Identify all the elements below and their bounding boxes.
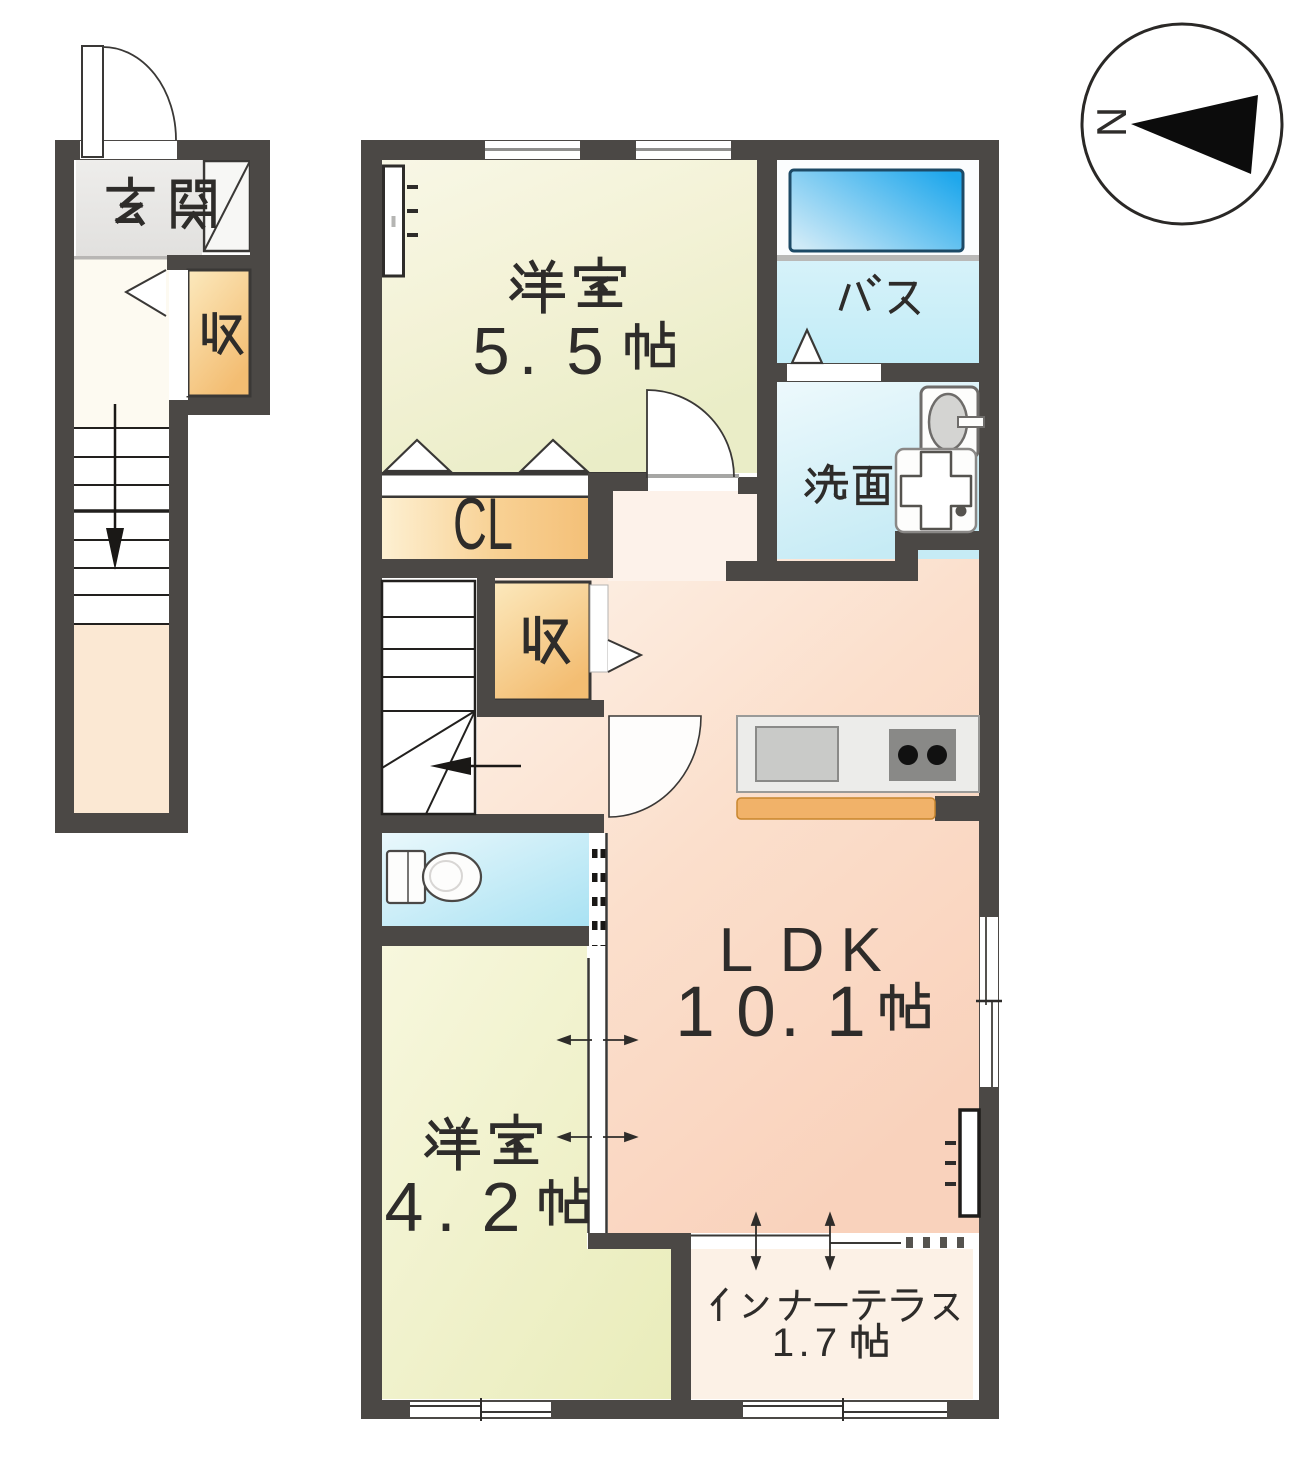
svg-text:5: 5: [472, 314, 509, 389]
svg-text:.: .: [519, 314, 538, 389]
svg-text:2: 2: [482, 1168, 521, 1246]
svg-text:5: 5: [566, 314, 603, 389]
svg-text:4: 4: [385, 1168, 424, 1246]
svg-text:CL: CL: [453, 484, 513, 565]
svg-text:.: .: [436, 1168, 455, 1246]
svg-text:.: .: [798, 1321, 809, 1365]
svg-text:7: 7: [815, 1321, 837, 1365]
svg-text:1: 1: [772, 1321, 794, 1365]
svg-text:N: N: [1088, 107, 1135, 137]
svg-text:.: .: [780, 973, 800, 1052]
svg-text:1: 1: [675, 973, 715, 1052]
svg-text:0: 0: [736, 973, 776, 1052]
svg-text:1: 1: [826, 973, 866, 1052]
